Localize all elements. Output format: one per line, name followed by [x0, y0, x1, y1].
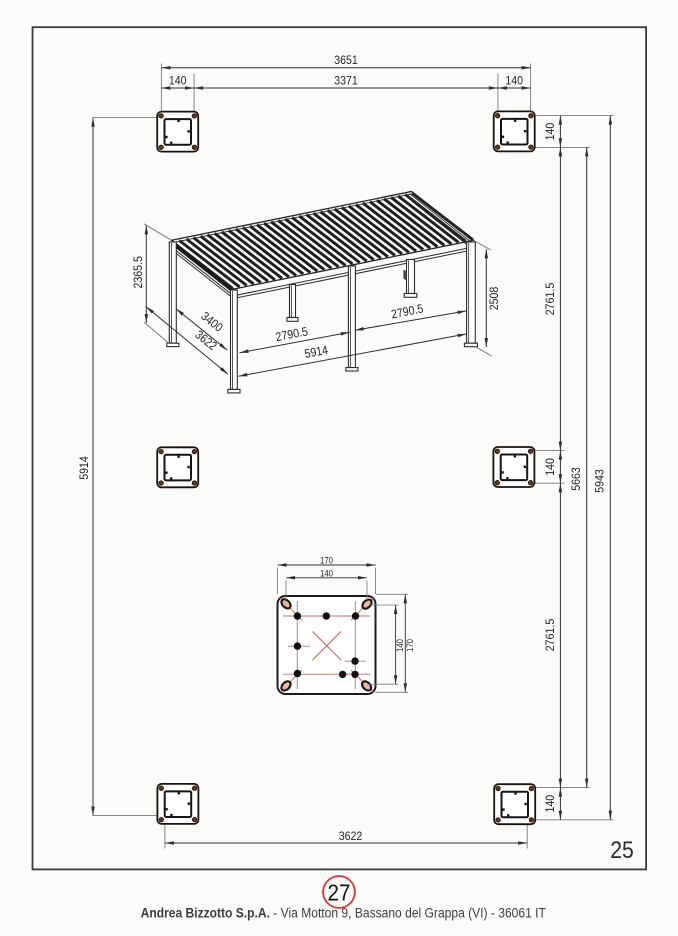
svg-text:170: 170 — [320, 556, 333, 566]
svg-text:Andrea Bizzotto S.p.A. - Via M: Andrea Bizzotto S.p.A. - Via Motton 9, B… — [141, 905, 546, 921]
svg-text:2761.5: 2761.5 — [543, 619, 557, 652]
svg-text:3651: 3651 — [334, 53, 358, 67]
svg-text:140: 140 — [169, 73, 187, 87]
svg-text:140: 140 — [505, 73, 523, 87]
svg-text:2761.5: 2761.5 — [543, 283, 557, 316]
svg-text:27: 27 — [328, 879, 351, 905]
svg-text:5663: 5663 — [569, 467, 583, 491]
svg-text:2365.5: 2365.5 — [131, 256, 145, 289]
svg-text:3622: 3622 — [339, 829, 363, 843]
svg-text:25: 25 — [610, 837, 634, 864]
svg-text:2508: 2508 — [487, 287, 501, 311]
svg-text:140: 140 — [543, 123, 557, 141]
svg-text:5914: 5914 — [77, 456, 91, 480]
svg-text:140: 140 — [320, 568, 333, 578]
svg-text:140: 140 — [543, 458, 557, 476]
svg-text:3371: 3371 — [334, 73, 358, 87]
svg-text:170: 170 — [405, 639, 415, 652]
svg-text:140: 140 — [395, 639, 405, 652]
svg-text:5943: 5943 — [593, 469, 607, 493]
svg-text:140: 140 — [543, 795, 557, 813]
